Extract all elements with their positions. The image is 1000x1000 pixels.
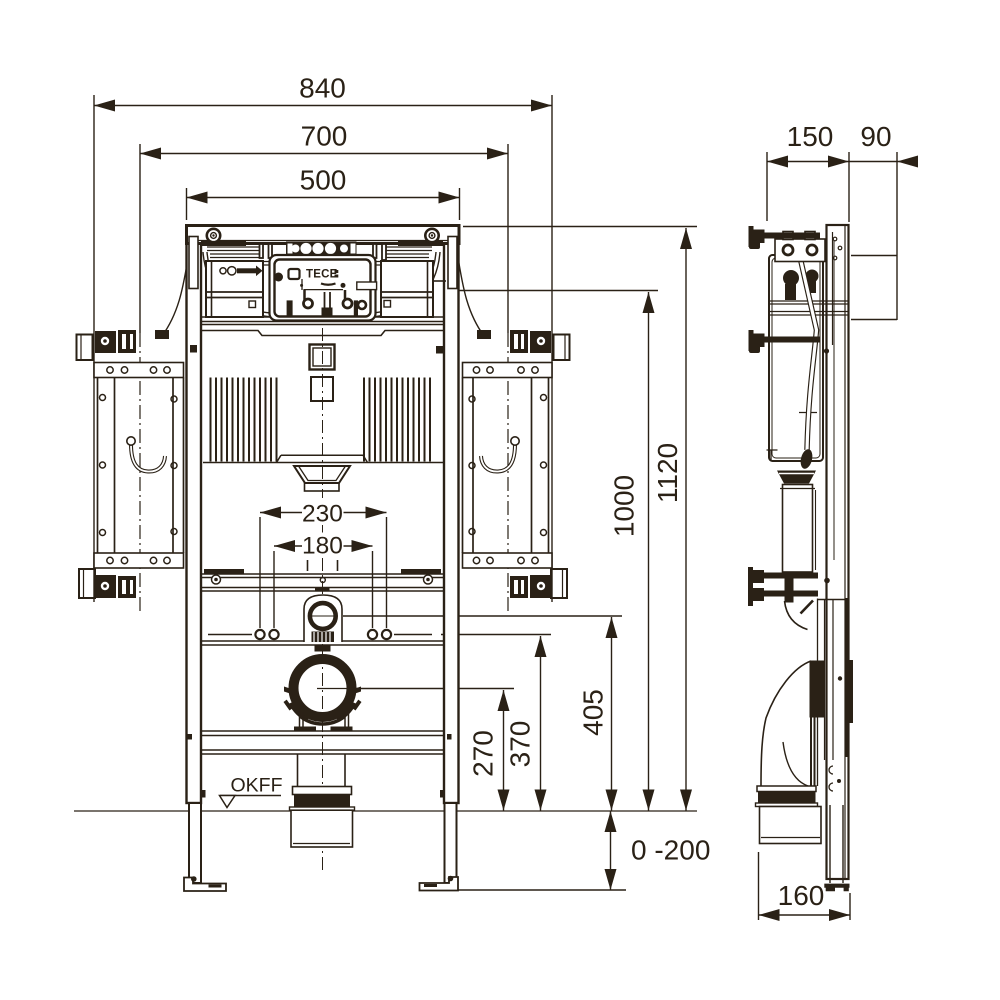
svg-text:1000: 1000 <box>609 475 640 537</box>
svg-text:500: 500 <box>300 165 347 196</box>
svg-text:OKFF: OKFF <box>231 775 283 797</box>
svg-text:180: 180 <box>302 533 343 560</box>
svg-text:90: 90 <box>860 121 891 152</box>
svg-text:230: 230 <box>302 501 343 528</box>
svg-text:160: 160 <box>778 880 825 911</box>
svg-text:TECE: TECE <box>306 269 338 281</box>
svg-text:1120: 1120 <box>652 443 683 503</box>
svg-text:270: 270 <box>468 730 499 777</box>
svg-text:370: 370 <box>505 721 536 768</box>
svg-text:405: 405 <box>578 689 609 736</box>
svg-text:150: 150 <box>787 121 834 152</box>
svg-text:840: 840 <box>299 73 346 104</box>
svg-text:0 -200: 0 -200 <box>631 835 710 866</box>
svg-text:700: 700 <box>301 121 348 152</box>
